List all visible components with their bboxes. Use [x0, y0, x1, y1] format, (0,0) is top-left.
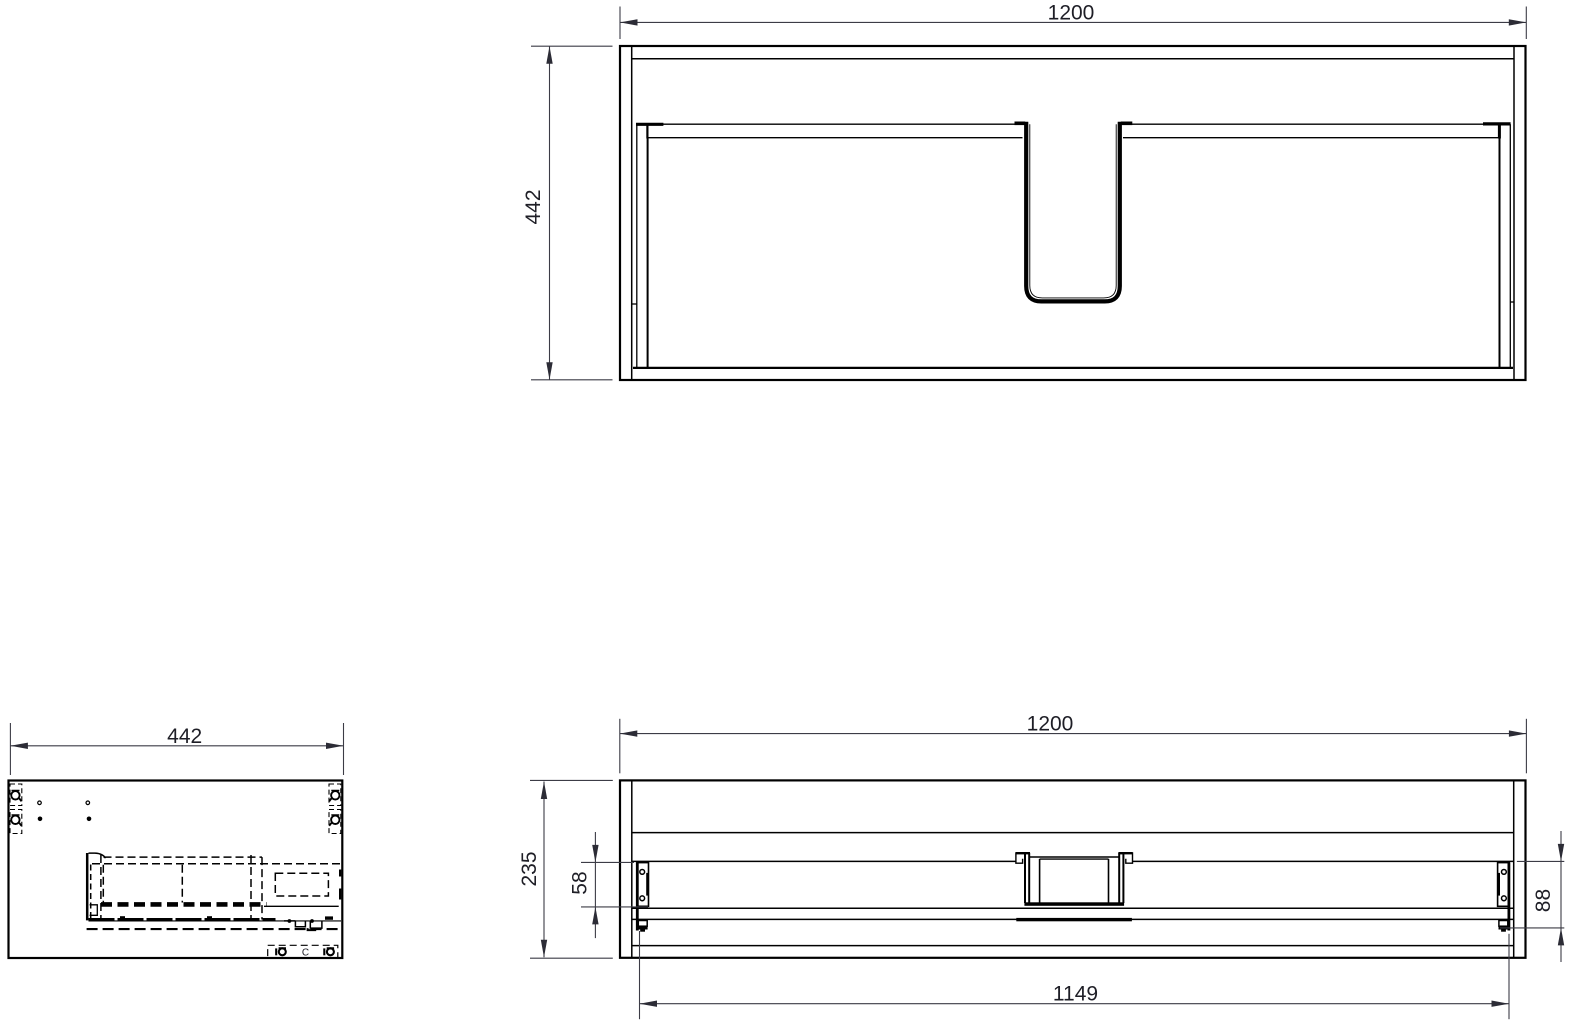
- svg-text:1200: 1200: [1048, 2, 1095, 25]
- svg-text:442: 442: [522, 189, 545, 224]
- svg-text:88: 88: [1532, 889, 1555, 912]
- svg-text:235: 235: [518, 851, 541, 886]
- svg-text:C: C: [302, 947, 309, 958]
- svg-text:1149: 1149: [1053, 983, 1098, 1006]
- svg-text:58: 58: [569, 871, 592, 894]
- svg-text:1200: 1200: [1027, 713, 1074, 736]
- svg-text:442: 442: [167, 725, 202, 748]
